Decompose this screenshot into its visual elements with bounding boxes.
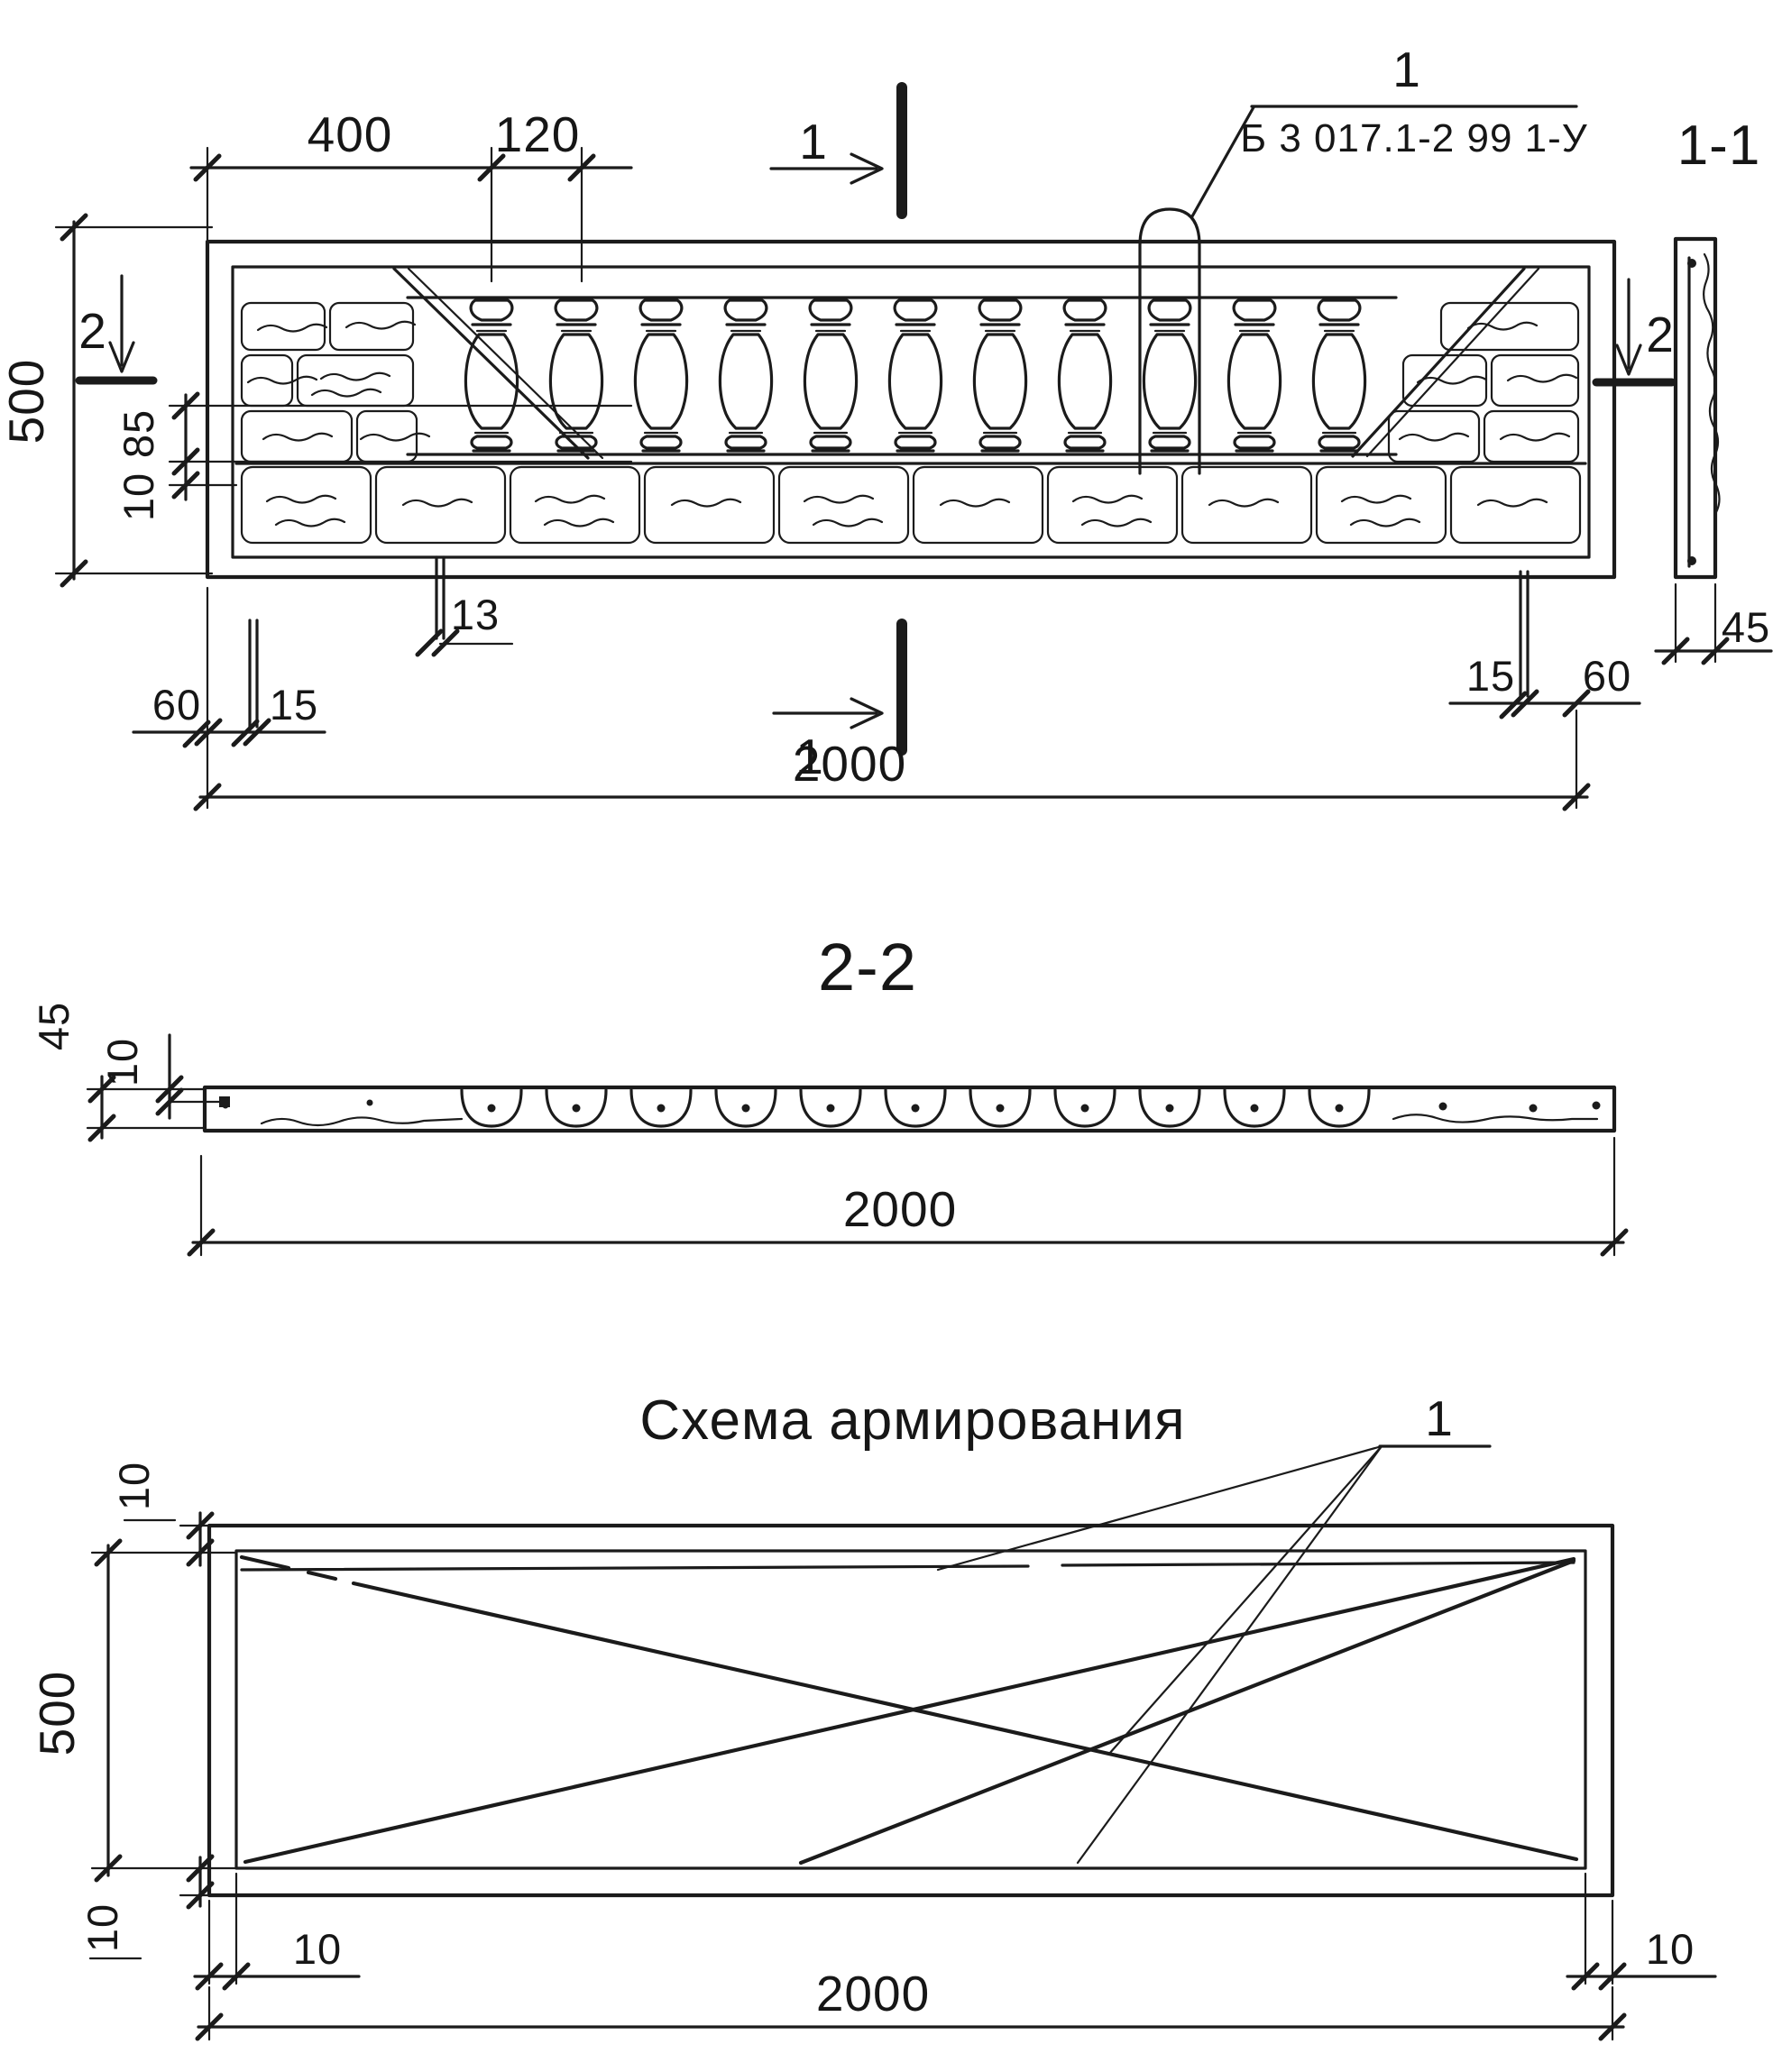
dim-2000: 2000 xyxy=(843,1181,957,1237)
dim-500: 500 xyxy=(29,1671,85,1756)
dim-cover-bottom: 10 10 xyxy=(195,1874,1715,1988)
dim-10-bottom-left: 10 xyxy=(293,1925,342,1973)
reinforcement-view: Схема армирования 1 10 xyxy=(29,1389,1715,2040)
dim-85: 85 xyxy=(115,409,162,458)
dim-strip-45-10: 45 10 xyxy=(30,1002,230,1140)
side-view-title: 1-1 xyxy=(1677,115,1761,177)
dim-10-bottom-right: 10 xyxy=(1646,1925,1695,1973)
dim-10-bottom-left-rot: 10 xyxy=(78,1903,126,1952)
balusters xyxy=(465,300,1364,451)
section-mark-label: 2 xyxy=(1646,307,1675,362)
callout-number: 1 xyxy=(1392,41,1421,97)
dim-bottom-right: 15 60 xyxy=(1450,572,1640,808)
dim-side-45: 45 xyxy=(1656,584,1771,663)
dim-height-500: 500 xyxy=(0,215,212,585)
dim-500: 500 xyxy=(0,359,54,445)
reinforcement-title: Схема армирования xyxy=(639,1389,1185,1452)
dim-top: 400 120 xyxy=(191,106,631,281)
dim-45-side: 45 xyxy=(1722,603,1770,651)
dim-10-top-left: 10 xyxy=(110,1462,158,1510)
dim-45: 45 xyxy=(30,1002,78,1050)
section-mark-1-top: 1 xyxy=(771,87,902,214)
dim-15-right: 15 xyxy=(1466,652,1515,700)
dim-400: 400 xyxy=(308,106,393,162)
bottom-stone-course xyxy=(242,467,1580,543)
right-relief-profile xyxy=(1393,1114,1597,1122)
dim-10: 10 xyxy=(115,472,162,521)
section-strip-outline xyxy=(205,1087,1614,1131)
dim-10: 10 xyxy=(98,1038,146,1086)
dim-slab-500: 500 xyxy=(29,1541,236,1880)
dim-120: 120 xyxy=(495,106,581,162)
dim-13: 13 xyxy=(451,591,500,638)
dim-60-right: 60 xyxy=(1583,652,1631,700)
dim-slab-2000: 2000 xyxy=(198,1966,1624,2040)
dim-2000: 2000 xyxy=(793,736,906,792)
elevation-view: 1 Б 3 017.1-2 99 1-У 1-1 1 1 2 xyxy=(0,41,1771,809)
dim-course-85-10: 85 10 xyxy=(115,394,631,521)
section-mark-label: 2 xyxy=(78,303,107,359)
dim-2000: 2000 xyxy=(816,1966,930,2022)
balustrade-technical-drawing: 1 Б 3 017.1-2 99 1-У 1-1 1 1 2 xyxy=(0,0,1773,2072)
left-relief-profile xyxy=(262,1117,462,1125)
dim-cover-bottom-left: 10 xyxy=(78,1857,212,1958)
section-mark-2-left: 2 xyxy=(78,276,153,380)
baluster-cross-sections xyxy=(462,1090,1369,1126)
scanned-drawing-page: 1 Б 3 017.1-2 99 1-У 1-1 1 1 2 xyxy=(0,0,1773,2072)
callout-number: 1 xyxy=(1425,1390,1454,1446)
dim-15-left: 15 xyxy=(270,681,318,729)
dim-strip-2000: 2000 xyxy=(189,1138,1626,1255)
section-mark-2-right: 2 xyxy=(1596,280,1675,382)
panel-edge-view xyxy=(1676,239,1720,577)
dim-60-left: 60 xyxy=(152,681,201,729)
section-mark-label: 1 xyxy=(799,114,828,170)
top-bar xyxy=(242,1563,1574,1570)
section-2-2-view: 2-2 45 10 xyxy=(30,930,1626,1255)
rebar-lines xyxy=(242,1557,1576,1863)
dim-length-2000: 2000 xyxy=(196,736,1588,809)
dowel-pin-13: 13 xyxy=(418,557,512,655)
callout-code: Б 3 017.1-2 99 1-У xyxy=(1240,116,1588,160)
section-2-2-title: 2-2 xyxy=(818,930,917,1004)
dim-bottom-left: 60 15 xyxy=(133,588,325,808)
